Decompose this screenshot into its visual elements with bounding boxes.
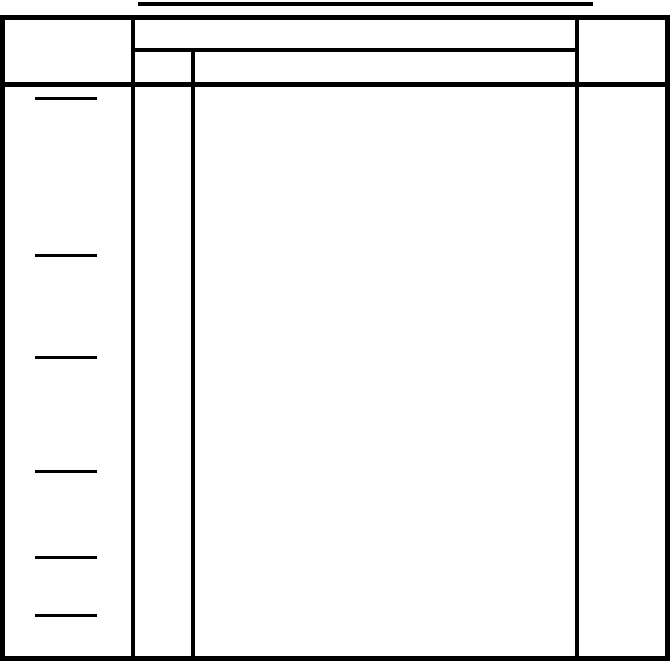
- fill-in-blank-line: [35, 470, 97, 473]
- header-cell-left: [5, 20, 131, 82]
- fill-in-blank-line: [35, 97, 97, 100]
- header-cell-middle-sub-right: [195, 52, 575, 82]
- header-cell-middle-sub-left: [135, 52, 191, 82]
- body-cell-main: [195, 87, 575, 655]
- fill-in-blank-line: [35, 614, 97, 617]
- fill-in-blank-line: [35, 254, 97, 257]
- body-cell-right: [579, 87, 665, 655]
- fill-in-blank-line: [35, 356, 97, 359]
- fill-in-blank-line: [35, 556, 97, 559]
- body-cell-left: [5, 87, 131, 655]
- document-page: [0, 0, 670, 665]
- body-cell-sub-left: [135, 87, 191, 655]
- header-cell-middle-merged: [135, 20, 575, 48]
- title-underline: [138, 2, 593, 6]
- header-cell-right: [579, 20, 665, 82]
